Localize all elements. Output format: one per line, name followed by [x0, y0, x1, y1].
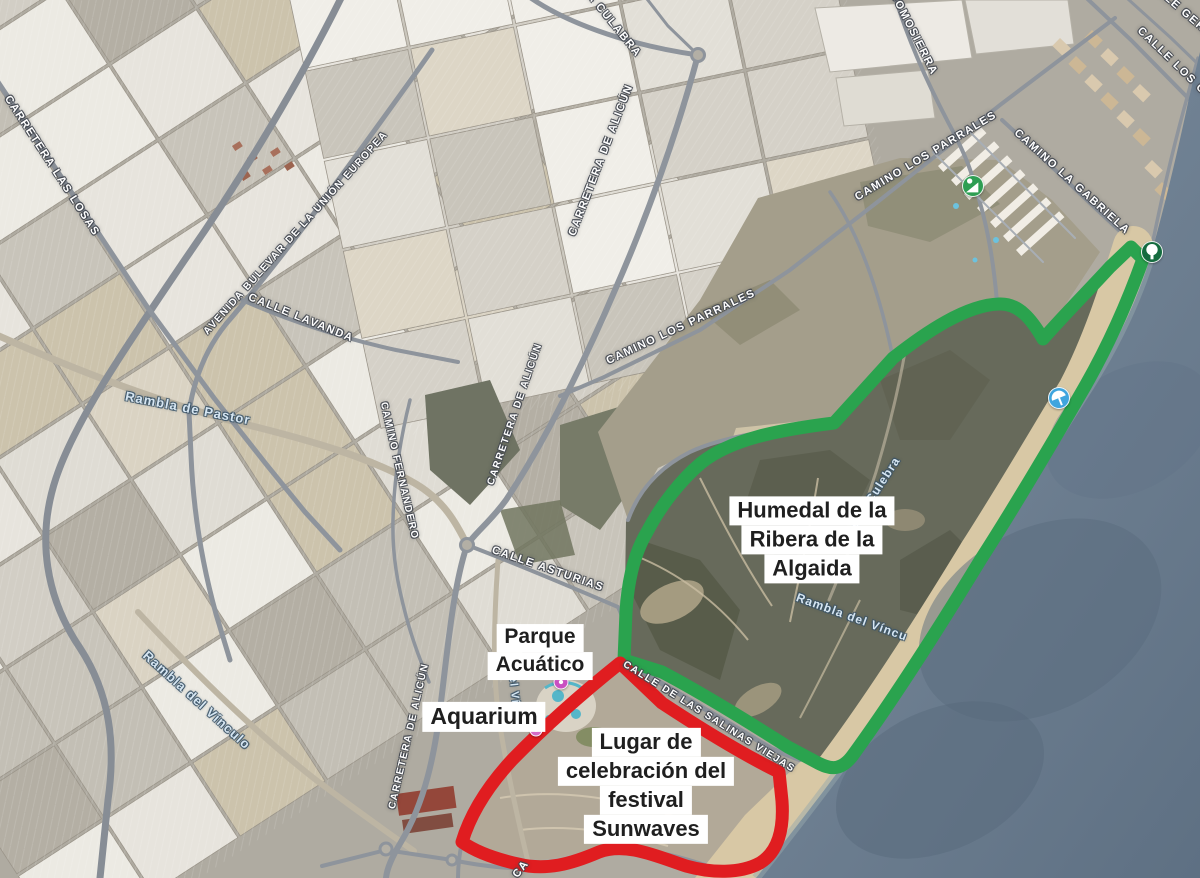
road-label: CARRETERA DE ALICÚN: [485, 341, 544, 486]
road-label: CAMINO LOS PARRALES: [853, 109, 999, 203]
place-label-line: celebración del: [558, 757, 734, 786]
attraction-1-icon: [554, 675, 569, 690]
place-label-humedal: Humedal de laRibera de laAlgaida: [729, 496, 894, 583]
place-label-line: Algaida: [764, 555, 859, 584]
road-label: CAMINO LOS PARRALES: [604, 287, 757, 367]
road-label: CAMINO FERNANDERO: [378, 401, 420, 541]
place-label-line: Acuático: [488, 652, 593, 680]
labels-layer: CARRETERA LAS LOSASAVENIDA BULEVAR DE LA…: [0, 0, 1200, 878]
water-label: del Vín: [506, 668, 523, 713]
water-label: Rambla de Pastor: [124, 388, 252, 427]
tree-icon: [1141, 241, 1163, 263]
road-label: A CULABRA: [584, 0, 643, 60]
place-label-line: Ribera de la: [742, 525, 883, 554]
beach-icon: [1048, 387, 1070, 409]
road-label: AVENIDA BULEVAR DE LA UNIÓN EUROPEA: [202, 129, 391, 337]
satellite-map: CARRETERA LAS LOSASAVENIDA BULEVAR DE LA…: [0, 0, 1200, 878]
road-label: CALLE ASTURIAS: [490, 544, 605, 594]
road-label: CALLE GERMAN: [1141, 0, 1200, 54]
place-label-line: Parque: [496, 624, 583, 652]
road-label: CALLE LAVANDA: [247, 291, 356, 344]
road-label: CALLE LOS G: [1135, 25, 1200, 97]
road-label: CARRETERA DE ALICÚN: [566, 82, 635, 237]
road-label: CAMINO LA GABRIELA: [1012, 127, 1132, 237]
place-label-aquarium: Aquarium: [422, 702, 545, 732]
place-label-line: Sunwaves: [584, 815, 708, 844]
road-label: CARRETERA DE ALICÚN: [387, 662, 431, 810]
park-playground-icon: [962, 175, 984, 197]
water-label: Rambla del Víncu: [794, 590, 909, 643]
place-label-line: festival: [600, 786, 692, 815]
water-label: e la Culebra: [847, 454, 903, 530]
water-label: Rambla del Vínculo: [140, 648, 254, 753]
road-label: CARRETERA LAS LOSAS: [2, 94, 102, 239]
road-label: CALLE DE LAS SALINAS VIEJAS: [621, 659, 797, 775]
place-label-line: Humedal de la: [729, 496, 894, 525]
place-label-sunwaves: Lugar decelebración delfestivalSunwaves: [558, 728, 734, 844]
attraction-2-icon: [530, 724, 543, 737]
road-label: SOMOSIERRA: [888, 0, 940, 77]
place-label-line: Lugar de: [592, 728, 701, 757]
road-label: CA: [510, 858, 531, 878]
place-label-line: Aquarium: [422, 702, 545, 732]
place-label-parque-acuatico: ParqueAcuático: [488, 624, 593, 680]
